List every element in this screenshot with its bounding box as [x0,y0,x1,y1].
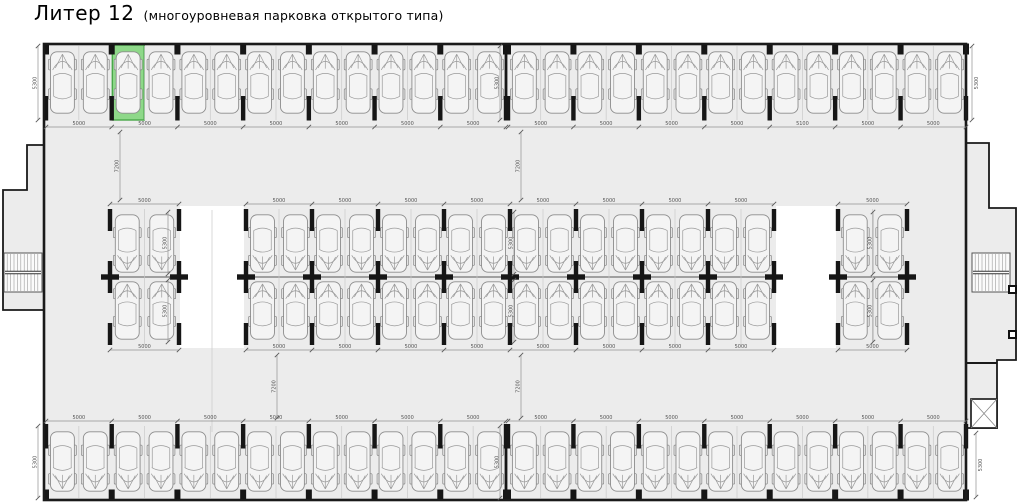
car-icon [311,52,339,113]
car-icon [510,52,538,113]
car-icon [612,282,640,339]
car-icon [711,215,739,272]
car-icon [180,52,208,113]
plan-title-sub: (многоуровневая парковка открытого типа) [144,8,444,23]
car-icon [344,52,372,113]
dimension-label: 5000 [72,415,85,421]
car-icon [609,52,637,113]
car-icon [213,52,241,113]
car-icon [744,215,772,272]
dimension-label: 5000 [335,121,348,127]
dimension-label: 5300 [868,237,874,250]
car-icon [707,432,735,491]
dimension-label: 5000 [270,121,283,127]
ramp-opening [776,206,836,348]
left-stairs-icon [4,253,42,292]
dimension-label: 5000 [138,121,151,127]
dimension-label: 5000 [866,198,879,204]
car-icon [576,52,604,113]
car-icon [612,215,640,272]
right-stairs-icon [972,253,1010,292]
car-icon [744,282,772,339]
car-icon [249,215,277,272]
floorplan-canvas: Литер 12 (многоуровневая парковка открыт… [0,0,1024,504]
dimension-label: 5000 [603,344,616,350]
dimension-label: 5000 [861,415,874,421]
car-icon [513,215,541,272]
dimension-label: 5300 [868,305,874,318]
car-icon [641,432,669,491]
car-icon [114,52,142,113]
car-icon [645,282,673,339]
dimension-label: 5000 [204,415,217,421]
car-icon [772,432,800,491]
car-icon [841,215,869,272]
car-icon [180,432,208,491]
dimension-label: 5000 [861,121,874,127]
car-icon [114,432,142,491]
dimension-label: 5000 [467,415,480,421]
dimension-label: 5000 [138,198,151,204]
car-icon [838,432,866,491]
dimension-label: 5000 [665,121,678,127]
car-icon [805,432,833,491]
dimension-label: 5300 [163,305,169,318]
car-icon [579,282,607,339]
dimension-label: 5000 [138,415,151,421]
dimension-label: 5000 [735,344,748,350]
dimension-label: 7200 [516,160,522,173]
car-icon [805,52,833,113]
car-icon [546,282,574,339]
car-icon [936,432,964,491]
dimension-label: 5000 [927,415,940,421]
car-icon [870,432,898,491]
dimension-label: 5300 [974,77,980,90]
dimension-label: 5000 [471,344,484,350]
dimension-label: 5000 [735,198,748,204]
car-icon [381,282,409,339]
dimension-label: 5000 [401,121,414,127]
dimension-label: 5300 [33,77,39,90]
dimension-label: 5300 [163,237,169,250]
dimension-label: 5000 [471,198,484,204]
dimension-label: 5000 [339,198,352,204]
dimension-label: 5300 [33,456,39,469]
dimension-label: 5000 [335,415,348,421]
car-icon [543,432,571,491]
dimension-label: 5000 [731,121,744,127]
dimension-label: 5000 [72,121,85,127]
dimension-label: 5000 [731,415,744,421]
car-icon [81,52,109,113]
dimension-label: 5000 [270,415,283,421]
car-icon [381,215,409,272]
car-icon [315,215,343,272]
dimension-label: 5100 [796,121,809,127]
car-icon [278,52,306,113]
car-icon [246,432,274,491]
dimension-label: 5000 [669,198,682,204]
elevator-shaft-icon [971,399,997,428]
car-icon [213,432,241,491]
dimension-label: 5000 [665,415,678,421]
car-icon [48,52,76,113]
car-icon [903,52,931,113]
dimension-label: 7200 [115,160,121,173]
dimension-label: 5000 [405,344,418,350]
dimension-label: 5000 [138,344,151,350]
parking-floorplan: 5000500050005000500050005000500050005000… [0,0,1024,504]
dimension-label: 5300 [978,459,984,472]
car-icon [480,215,508,272]
car-icon [348,282,376,339]
dimension-label: 7200 [516,380,522,393]
car-icon [344,432,372,491]
car-icon [410,432,438,491]
dimension-label: 5000 [273,344,286,350]
dimension-label: 5000 [796,415,809,421]
dimension-label: 5000 [866,344,879,350]
car-icon [282,282,310,339]
car-icon [678,215,706,272]
car-icon [443,52,471,113]
dimension-label: 5000 [927,121,940,127]
car-icon [711,282,739,339]
car-icon [414,215,442,272]
car-icon [739,52,767,113]
car-icon [348,215,376,272]
car-icon [414,282,442,339]
car-icon [246,52,274,113]
car-icon [447,215,475,272]
dimension-label: 5000 [600,121,613,127]
car-icon [147,432,175,491]
dimension-label: 5300 [495,456,501,469]
dimension-label: 5000 [405,198,418,204]
car-icon [282,215,310,272]
car-icon [707,52,735,113]
dimension-label: 5000 [339,344,352,350]
plan-title-main: Литер 12 [34,1,135,25]
dimension-label: 5000 [534,121,547,127]
dimension-label: 5000 [467,121,480,127]
car-icon [377,52,405,113]
dimension-label: 5000 [534,415,547,421]
car-icon [576,432,604,491]
car-icon [645,215,673,272]
car-icon [113,282,141,339]
plan-title: Литер 12 (многоуровневая парковка открыт… [34,1,444,25]
car-icon [772,52,800,113]
car-icon [113,215,141,272]
car-icon [609,432,637,491]
dimension-label: 5000 [537,344,550,350]
car-icon [443,432,471,491]
car-icon [513,282,541,339]
car-icon [510,432,538,491]
car-icon [249,282,277,339]
car-icon [546,215,574,272]
car-icon [876,215,904,272]
car-icon [579,215,607,272]
dimension-label: 7200 [272,380,278,393]
car-icon [936,52,964,113]
car-icon [903,432,931,491]
car-icon [278,432,306,491]
car-icon [678,282,706,339]
car-icon [739,432,767,491]
car-icon [311,432,339,491]
car-icon [838,52,866,113]
dimension-label: 5000 [401,415,414,421]
car-icon [447,282,475,339]
car-icon [641,52,669,113]
car-icon [876,282,904,339]
car-icon [674,52,702,113]
car-icon [315,282,343,339]
dimension-label: 5000 [600,415,613,421]
dimension-label: 5000 [669,344,682,350]
dimension-label: 5000 [603,198,616,204]
dimension-label: 5300 [509,305,515,318]
car-icon [841,282,869,339]
dimension-label: 5000 [537,198,550,204]
dimension-label: 5300 [495,77,501,90]
car-icon [543,52,571,113]
car-icon [410,52,438,113]
dimension-label: 5300 [509,237,515,250]
dimension-label: 5000 [204,121,217,127]
dimension-label: 5000 [273,198,286,204]
car-icon [147,52,175,113]
car-icon [674,432,702,491]
car-icon [377,432,405,491]
car-icon [81,432,109,491]
car-icon [480,282,508,339]
car-icon [870,52,898,113]
car-icon [48,432,76,491]
